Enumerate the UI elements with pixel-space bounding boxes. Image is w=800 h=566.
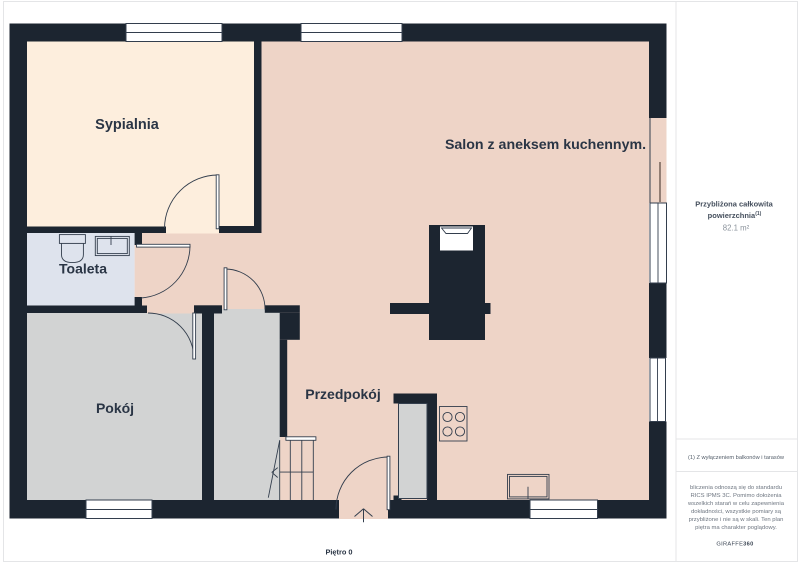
svg-text:GIRAFFE360: GIRAFFE360 — [716, 542, 753, 548]
svg-text:piętra ma charakter poglądowy.: piętra ma charakter poglądowy. — [695, 525, 777, 531]
svg-text:Przybliżona całkowita: Przybliżona całkowita — [695, 200, 773, 209]
svg-text:Piętro 0: Piętro 0 — [325, 548, 352, 557]
svg-text:przybliżone i nie są w skali.: przybliżone i nie są w skali. Ten plan — [689, 517, 784, 523]
svg-text:Przedpokój: Przedpokój — [305, 386, 380, 402]
svg-text:wszelkich starań w celu zapewn: wszelkich starań w celu zapewnienia — [687, 501, 785, 507]
svg-text:powierzchnia(1): powierzchnia(1) — [708, 211, 762, 220]
svg-text:Toaleta: Toaleta — [59, 261, 107, 277]
svg-text:bliczenia odnoszą się do stand: bliczenia odnoszą się do standardu — [690, 485, 782, 491]
svg-text:82.1 m²: 82.1 m² — [723, 224, 750, 233]
svg-text:dokładności, wszystkie pomiary: dokładności, wszystkie pomiary są — [691, 509, 782, 515]
svg-text:Sypialnia: Sypialnia — [95, 117, 160, 133]
svg-text:Salon z aneksem kuchennym.: Salon z aneksem kuchennym. — [445, 137, 646, 153]
svg-text:(1) Z wyłączeniem balkonów i t: (1) Z wyłączeniem balkonów i tarasów — [688, 455, 785, 461]
svg-text:Pokój: Pokój — [96, 400, 134, 416]
svg-text:RICS IPMS 3C. Pomimo dołożenia: RICS IPMS 3C. Pomimo dołożenia — [690, 493, 782, 499]
